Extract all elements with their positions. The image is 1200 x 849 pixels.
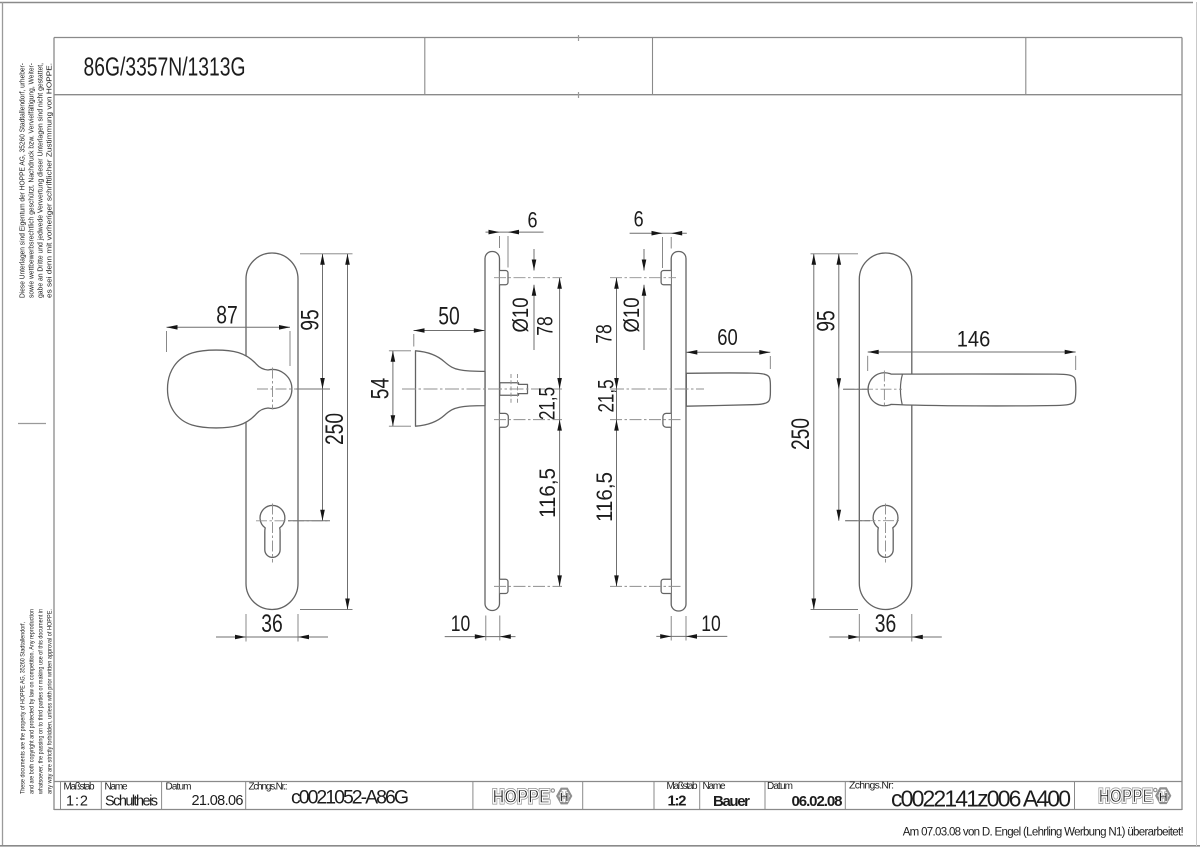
svg-text:78: 78 xyxy=(592,324,617,344)
svg-text:HOPPE: HOPPE xyxy=(1099,787,1153,808)
svg-text:10: 10 xyxy=(451,611,471,636)
svg-text:78: 78 xyxy=(533,316,558,336)
svg-text:Maßstab: Maßstab xyxy=(667,781,698,792)
svg-text:Diese Unterlagen sind Eigentum: Diese Unterlagen sind Eigentum der HOPPE… xyxy=(18,62,27,298)
svg-text:21.08.06: 21.08.06 xyxy=(192,793,244,809)
svg-text:50: 50 xyxy=(438,303,460,331)
svg-text:H: H xyxy=(560,791,569,805)
svg-text:54: 54 xyxy=(367,378,395,400)
svg-text:Datum: Datum xyxy=(767,781,793,792)
svg-text:Name: Name xyxy=(703,781,726,792)
svg-text:H: H xyxy=(1159,790,1168,804)
svg-text:Zchngs.Nr.:: Zchngs.Nr.: xyxy=(249,782,288,793)
svg-text:Zchngs.Nr:: Zchngs.Nr: xyxy=(849,780,894,792)
svg-text:c0021052-A86G: c0021052-A86G xyxy=(291,787,409,809)
svg-text:whatsoever, the passing on to: whatsoever, the passing on to third part… xyxy=(38,609,45,795)
svg-text:Ø10: Ø10 xyxy=(619,298,644,333)
svg-text:06.02.08: 06.02.08 xyxy=(792,793,843,810)
svg-text:6: 6 xyxy=(528,208,538,233)
svg-text:and are both copyright and pro: and are both copyright and protected by … xyxy=(29,609,36,794)
svg-text:Datum: Datum xyxy=(166,782,192,793)
svg-text:116,5: 116,5 xyxy=(592,472,617,522)
svg-text:Name: Name xyxy=(105,782,128,793)
svg-text:146: 146 xyxy=(957,327,991,352)
svg-text:10: 10 xyxy=(701,611,721,636)
svg-text:any way are strictly forbidden: any way are strictly forbidden, unless w… xyxy=(47,609,54,794)
svg-text:1 : 2: 1 : 2 xyxy=(66,794,88,810)
svg-text:6: 6 xyxy=(634,207,644,232)
svg-text:Maßstab: Maßstab xyxy=(64,782,95,793)
svg-text:21,5: 21,5 xyxy=(535,387,560,420)
svg-text:36: 36 xyxy=(875,610,897,638)
svg-text:HOPPE: HOPPE xyxy=(493,786,551,808)
svg-text:36: 36 xyxy=(261,610,283,638)
svg-text:es sei denn mit vorheriger sch: es sei denn mit vorheriger schriftlicher… xyxy=(45,63,54,298)
svg-text:sowie wettbewerbsrechtlich ges: sowie wettbewerbsrechtlich geschützt. Na… xyxy=(27,62,36,298)
svg-text:Ø10: Ø10 xyxy=(508,298,533,333)
svg-text:250: 250 xyxy=(321,413,349,445)
svg-text:Bauer: Bauer xyxy=(713,793,750,810)
svg-text:Am 07.03.08 von D. Engel (Lehr: Am 07.03.08 von D. Engel (Lehrling Werbu… xyxy=(903,827,1184,839)
svg-text:86G/3357N/1313G: 86G/3357N/1313G xyxy=(84,54,246,82)
svg-text:95: 95 xyxy=(297,309,325,331)
svg-text:21,5: 21,5 xyxy=(594,380,619,413)
svg-text:95: 95 xyxy=(812,310,840,332)
svg-text:These documents are the proper: These documents are the property of HOPP… xyxy=(20,622,27,794)
svg-text:1:2: 1:2 xyxy=(668,793,687,810)
svg-text:116,5: 116,5 xyxy=(535,468,560,518)
svg-text:Schultheis: Schultheis xyxy=(105,794,158,810)
svg-text:250: 250 xyxy=(787,418,815,450)
svg-text:gabe an Dritte und jedwede Ver: gabe an Dritte und jedwede Verwertung di… xyxy=(36,63,45,298)
svg-text:c0022141z006 A400: c0022141z006 A400 xyxy=(891,786,1071,812)
svg-text:60: 60 xyxy=(717,324,738,350)
svg-text:87: 87 xyxy=(216,302,238,330)
